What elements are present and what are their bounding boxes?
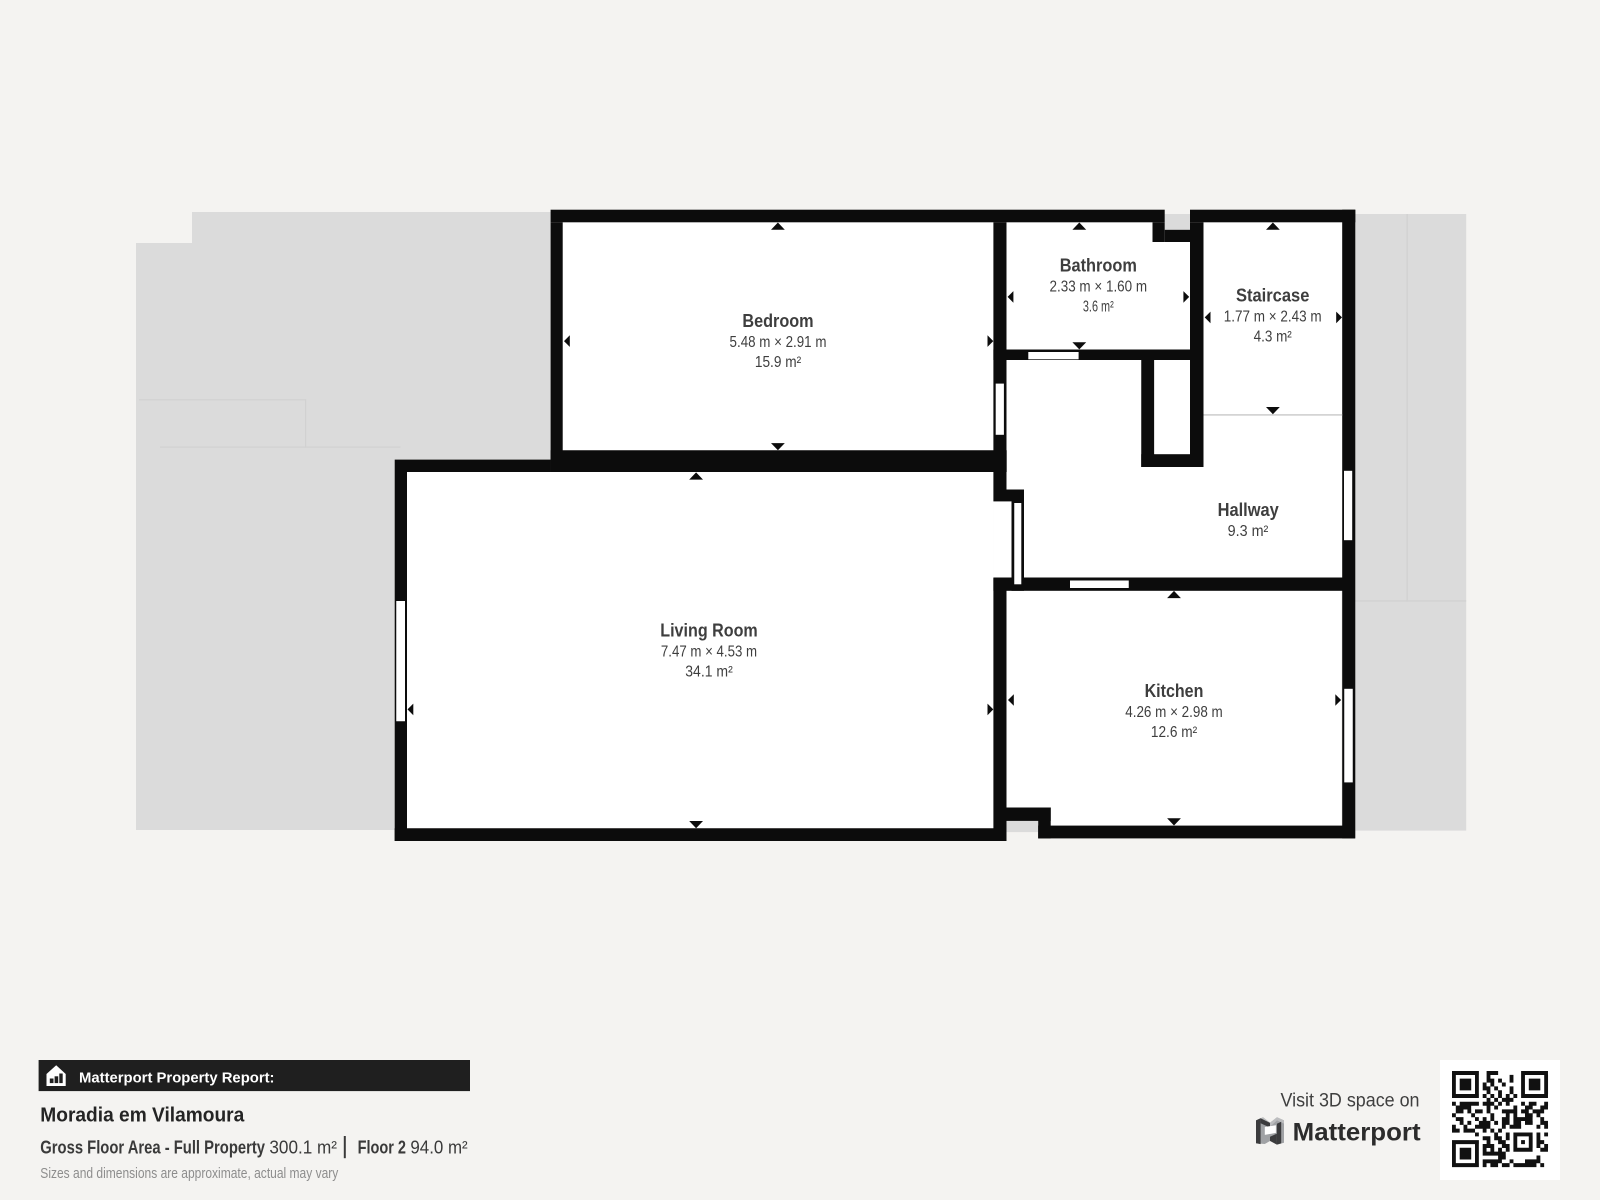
svg-text:5.48 m × 2.91 m: 5.48 m × 2.91 m: [730, 334, 827, 351]
svg-text:Hallway: Hallway: [1218, 500, 1279, 520]
svg-text:Staircase: Staircase: [1236, 286, 1310, 306]
svg-text:Floor 2: Floor 2: [358, 1138, 406, 1158]
svg-text:Moradia em Vilamoura: Moradia em Vilamoura: [40, 1103, 245, 1126]
svg-text:4.26 m × 2.98 m: 4.26 m × 2.98 m: [1125, 704, 1223, 721]
svg-text:3.6 m²: 3.6 m²: [1083, 299, 1114, 316]
svg-text:4.3 m²: 4.3 m²: [1254, 329, 1292, 346]
svg-text:300.1 m²: 300.1 m²: [269, 1138, 337, 1158]
svg-text:Sizes and dimensions are appro: Sizes and dimensions are approximate, ac…: [40, 1165, 338, 1182]
svg-text:Matterport: Matterport: [1293, 1118, 1422, 1146]
svg-text:Living Room: Living Room: [660, 621, 758, 641]
svg-text:Matterport Property Report:: Matterport Property Report:: [79, 1070, 275, 1087]
svg-text:7.47 m × 4.53 m: 7.47 m × 4.53 m: [661, 644, 757, 661]
svg-text:Bedroom: Bedroom: [742, 311, 813, 331]
svg-text:Visit 3D space on: Visit 3D space on: [1281, 1091, 1420, 1112]
svg-text:34.1 m²: 34.1 m²: [685, 664, 733, 681]
svg-text:12.6 m²: 12.6 m²: [1151, 724, 1197, 741]
svg-text:1.77 m × 2.43 m: 1.77 m × 2.43 m: [1224, 309, 1322, 326]
svg-text:15.9 m²: 15.9 m²: [755, 354, 801, 371]
svg-text:9.3 m²: 9.3 m²: [1228, 523, 1269, 540]
svg-text:Kitchen: Kitchen: [1145, 681, 1204, 701]
svg-text:2.33 m × 1.60 m: 2.33 m × 1.60 m: [1050, 279, 1148, 296]
svg-text:94.0 m²: 94.0 m²: [410, 1138, 467, 1158]
svg-text:Gross Floor Area - Full Proper: Gross Floor Area - Full Property: [40, 1138, 265, 1158]
svg-text:Bathroom: Bathroom: [1060, 256, 1137, 276]
